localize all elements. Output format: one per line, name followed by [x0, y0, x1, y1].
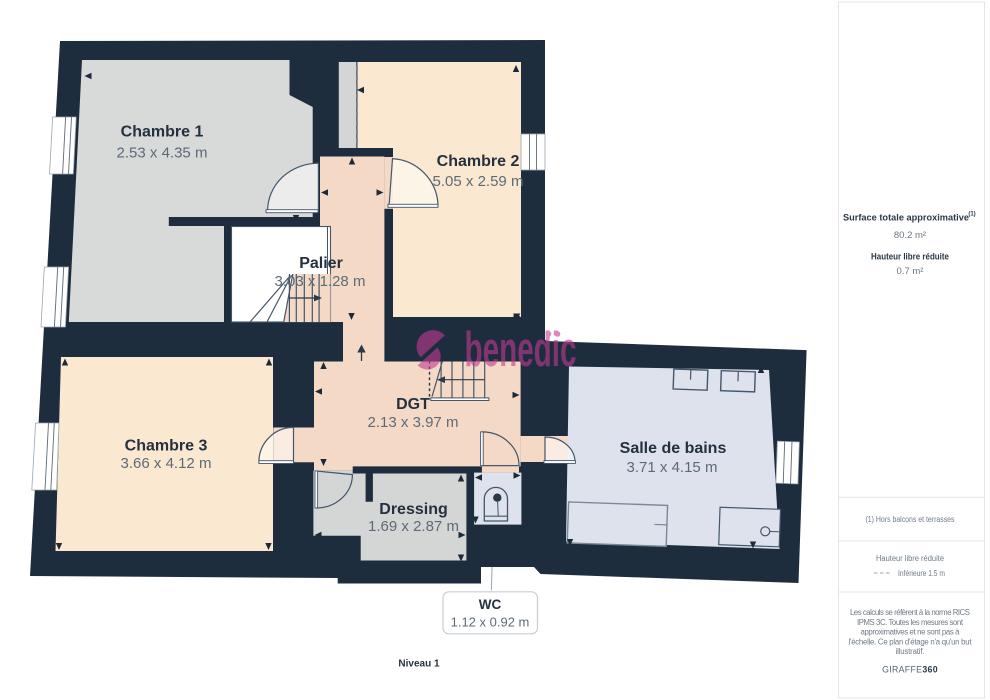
svg-text:(1) Hors balcons et terrasses: (1) Hors balcons et terrasses [866, 515, 955, 524]
svg-text:WC: WC [479, 597, 502, 612]
svg-text:2.53 x 4.35 m: 2.53 x 4.35 m [117, 145, 208, 162]
svg-text:IPMS 3C. Toutes les mesures so: IPMS 3C. Toutes les mesures sont [857, 618, 964, 627]
svg-text:Surface totale approximative: Surface totale approximative [843, 213, 969, 224]
svg-text:2.13 x 3.97 m: 2.13 x 3.97 m [368, 414, 459, 431]
svg-text:Chambre 3: Chambre 3 [125, 438, 208, 455]
svg-text:(1): (1) [968, 212, 975, 218]
svg-text:Les calculs se réfèrent à la n: Les calculs se réfèrent à la norme RICS [850, 608, 970, 617]
svg-text:Hauteur libre réduite: Hauteur libre réduite [871, 252, 949, 263]
svg-text:3.03 x 1.28 m: 3.03 x 1.28 m [275, 273, 366, 290]
svg-text:1.12 x 0.92 m: 1.12 x 0.92 m [451, 615, 530, 630]
svg-text:GIRAFFE360: GIRAFFE360 [882, 665, 938, 675]
svg-text:1.69 x 2.87 m: 1.69 x 2.87 m [368, 518, 459, 535]
svg-text:Niveau 1: Niveau 1 [398, 659, 440, 670]
svg-text:Chambre 1: Chambre 1 [121, 124, 204, 141]
svg-text:l'échelle. Ce plan d'étage n'a: l'échelle. Ce plan d'étage n'a qu'un but [849, 637, 973, 646]
svg-text:Palier: Palier [299, 255, 343, 272]
svg-text:0.7 m²: 0.7 m² [897, 266, 924, 277]
svg-text:approximatives et ne sont pas: approximatives et ne sont pas à [861, 628, 961, 637]
svg-text:Chambre 2: Chambre 2 [437, 153, 520, 170]
svg-text:Dressing: Dressing [379, 501, 447, 518]
svg-text:80.2 m²: 80.2 m² [894, 230, 926, 241]
svg-text:illustratif.: illustratif. [896, 647, 925, 656]
svg-text:3.71 x 4.15 m: 3.71 x 4.15 m [627, 459, 718, 476]
svg-text:Inférieure 1.5 m: Inférieure 1.5 m [898, 569, 945, 578]
svg-text:benedic: benedic [465, 323, 577, 377]
svg-text:DGT: DGT [396, 396, 430, 413]
svg-text:3.66 x 4.12 m: 3.66 x 4.12 m [121, 455, 212, 472]
svg-text:Hauteur libre réduite: Hauteur libre réduite [876, 554, 944, 563]
svg-text:Salle de bains: Salle de bains [620, 440, 727, 457]
svg-text:5.05 x 2.59 m: 5.05 x 2.59 m [433, 173, 524, 190]
